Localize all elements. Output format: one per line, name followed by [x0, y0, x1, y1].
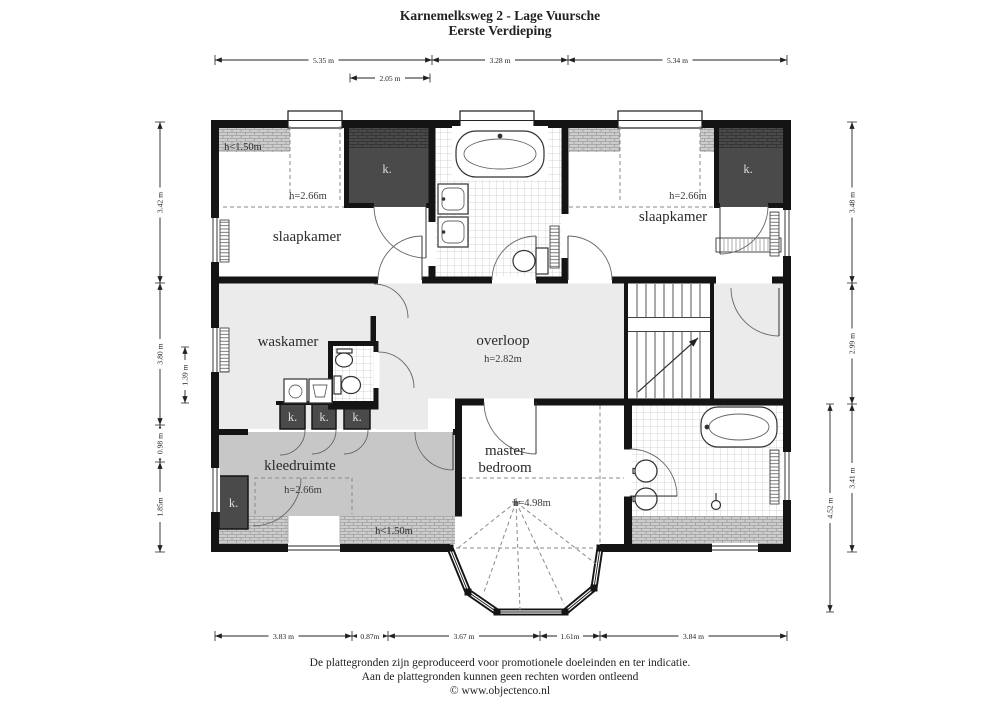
- dimension-left: 3.42 m 3.80 m 0.98 m 1.85m 1.39 m: [155, 122, 190, 552]
- closet-label-5: k.: [352, 410, 361, 424]
- title-block: Karnemelksweg 2 - Lage Vuursche Eerste V…: [400, 8, 600, 38]
- toilet-bowl: [513, 251, 535, 272]
- wc-toilet-tank: [334, 376, 341, 394]
- bathtub-tap: [498, 134, 503, 139]
- wc-sink: [336, 353, 353, 367]
- dim-left-2: 0.98 m: [156, 433, 165, 454]
- radiator-bedroom-left: [220, 220, 229, 262]
- room-label-overloop: overloop: [476, 333, 529, 349]
- plan-subtitle: Eerste Verdieping: [448, 23, 551, 38]
- room-label-kleedruimte: kleedruimte: [264, 458, 336, 474]
- radiator-ensuite: [770, 450, 779, 504]
- dim-top-sub: 2.05 m: [379, 74, 400, 83]
- floor-plan-drawing: Karnemelksweg 2 - Lage Vuursche Eerste V…: [0, 0, 1000, 707]
- low-ceiling-label-bottom: h<1.50m: [375, 526, 413, 537]
- room-label-master-2: bedroom: [478, 460, 532, 476]
- dim-bottom-2: 3.67 m: [453, 632, 474, 641]
- dim-left-3: 1.85m: [156, 497, 165, 516]
- ceiling-label-right-bedroom: h=2.66m: [669, 191, 707, 202]
- dim-bottom-3: 1.61m: [560, 632, 579, 641]
- dim-bottom-4: 3.84 m: [683, 632, 704, 641]
- footer-line-2: Aan de plattegronden kunnen geen rechten…: [362, 671, 639, 683]
- room-label-master-1: master: [485, 443, 525, 459]
- dim-top-0: 5.35 m: [313, 56, 334, 65]
- closet-label-1: k.: [382, 162, 391, 176]
- closet-label-3: k.: [288, 410, 297, 424]
- dormer-window-left: [288, 111, 342, 128]
- dim-right-0: 3.48 m: [848, 192, 857, 213]
- wc-toilet-bowl: [342, 377, 361, 394]
- ceiling-label-kleedruimte: h=2.66m: [284, 485, 322, 496]
- dimension-bottom: 3.83 m 0.87m 3.67 m 1.61m 3.84 m: [215, 631, 787, 641]
- radiator-bedroom-right: [770, 212, 779, 256]
- towel-radiator: [550, 226, 559, 268]
- closet-label-4: k.: [319, 410, 328, 424]
- dim-left-1: 3.80 m: [156, 343, 165, 364]
- washing-machine: [284, 379, 307, 403]
- bathtub-ensuite: [701, 407, 777, 447]
- round-sink-1: [635, 460, 657, 482]
- floor-plan-page: Karnemelksweg 2 - Lage Vuursche Eerste V…: [0, 0, 1000, 707]
- low-ceiling-label-top: h<1.50m: [224, 142, 262, 153]
- bay-window: [447, 545, 604, 616]
- room-label-slaapkamer-right: slaapkamer: [639, 209, 707, 225]
- footer-line-3: © www.objectenco.nl: [450, 685, 550, 697]
- ceiling-label-left-bedroom: h=2.66m: [289, 191, 327, 202]
- laundry-sink: [309, 379, 332, 403]
- dim-top-1: 3.28 m: [489, 56, 510, 65]
- footer-disclaimer: De plattegronden zijn geproduceerd voor …: [310, 657, 691, 697]
- toilet-tank: [536, 248, 548, 274]
- footer-line-1: De plattegronden zijn geproduceerd voor …: [310, 657, 691, 669]
- radiator-waskamer: [220, 328, 229, 372]
- dim-right-2: 3.41 m: [848, 467, 857, 488]
- dim-right-1: 2.99 m: [848, 333, 857, 354]
- dimension-right: 3.48 m 2.99 m 3.41 m 4.52 m: [825, 122, 857, 612]
- room-label-waskamer: waskamer: [258, 334, 319, 350]
- dim-top-2: 5.34 m: [667, 56, 688, 65]
- plan-title: Karnemelksweg 2 - Lage Vuursche: [400, 8, 600, 23]
- dim-left-0: 3.42 m: [156, 192, 165, 213]
- ceiling-label-master: h=4.98m: [513, 498, 551, 509]
- dim-bottom-1: 0.87m: [360, 632, 379, 641]
- ceiling-label-overloop: h=2.82m: [484, 354, 522, 365]
- dim-bottom-0: 3.83 m: [273, 632, 294, 641]
- shower-column: [712, 501, 721, 510]
- dimension-top: 5.35 m 3.28 m 5.34 m 2.05 m: [215, 55, 787, 83]
- dormer-window-right: [618, 111, 702, 128]
- closet-label-6: k.: [229, 496, 238, 510]
- closet-label-2: k.: [743, 162, 752, 176]
- dormer-window-center: [460, 111, 534, 128]
- room-label-slaapkamer-left: slaapkamer: [273, 229, 341, 245]
- dim-right-outer: 4.52 m: [826, 497, 835, 518]
- dim-left-inner: 1.39 m: [181, 364, 190, 385]
- round-sink-2: [635, 488, 657, 510]
